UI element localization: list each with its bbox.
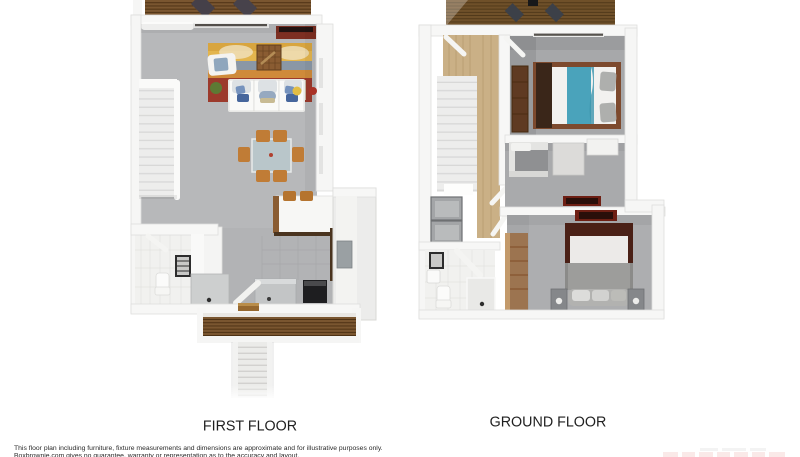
svg-text:FIRST FLOOR: FIRST FLOOR: [203, 419, 297, 435]
svg-text:This floor plan including furn: This floor plan including furniture, fix…: [14, 445, 383, 452]
svg-text:GROUND FLOOR: GROUND FLOOR: [490, 414, 607, 430]
svg-text:Boxbrownie.com gives no guaran: Boxbrownie.com gives no guarantee, warra…: [14, 452, 299, 457]
